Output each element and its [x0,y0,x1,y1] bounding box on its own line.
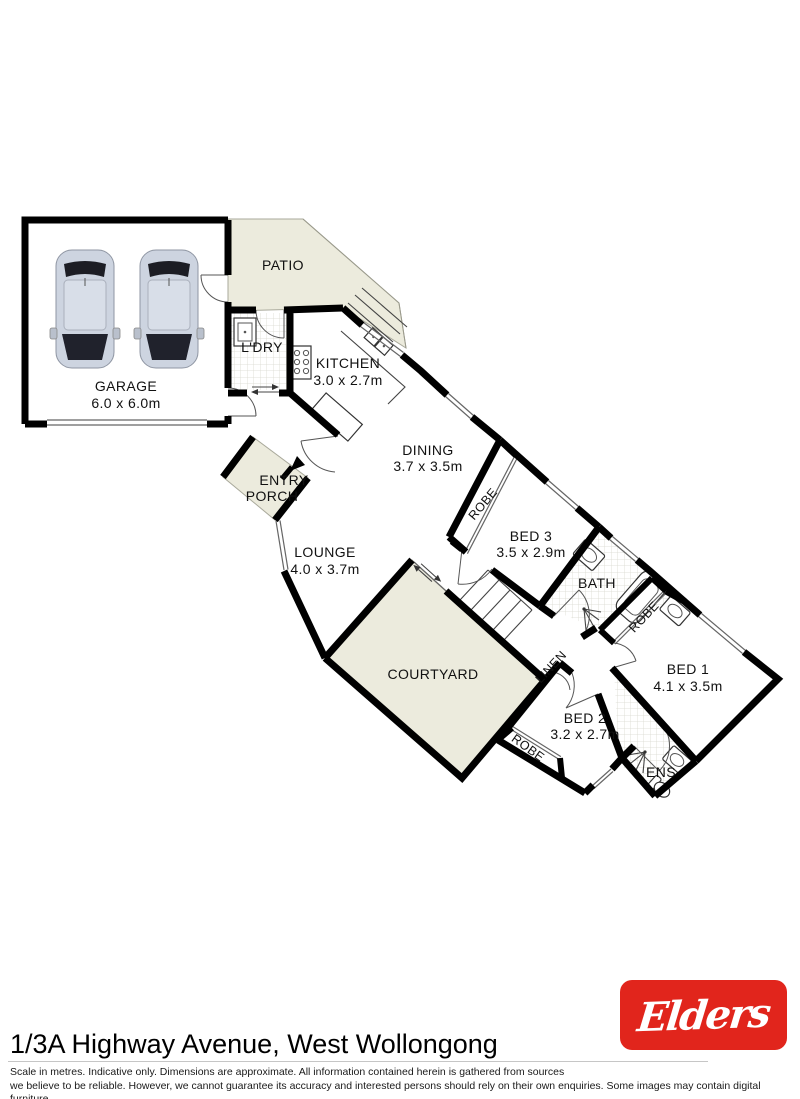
bed3-label: BED 3 [510,528,552,544]
bed1-dims: 4.1 x 3.5m [653,678,722,694]
car-icon [50,250,120,368]
disclaimer-text: Scale in metres. Indicative only. Dimens… [10,1066,790,1099]
garage-label: GARAGE [95,378,157,394]
lounge-label: LOUNGE [294,544,356,560]
lounge-dims: 4.0 x 3.7m [290,561,359,577]
disclaimer-line-1: Scale in metres. Indicative only. Dimens… [10,1066,790,1080]
garage-dims: 6.0 x 6.0m [91,395,160,411]
bed2-label: BED 2 [564,710,606,726]
courtyard-label: COURTYARD [388,666,479,682]
footer-divider [8,1061,708,1062]
floorplan-page: GARAGE 6.0 x 6.0m PATIO L'DRY KITCHEN 3.… [0,0,800,1099]
property-address: 1/3A Highway Avenue, West Wollongong [10,1029,498,1060]
kitchen-label: KITCHEN [316,355,380,371]
ensuite-label: ENS [646,764,676,780]
bed3-dims: 3.5 x 2.9m [496,544,565,560]
dining-dims: 3.7 x 3.5m [393,458,462,474]
disclaimer-line-2: we believe to be reliable. However, we c… [10,1080,790,1099]
kitchen-dims: 3.0 x 2.7m [313,372,382,388]
entry-label: ENTRY [259,472,308,488]
bed2-dims: 3.2 x 2.7m [550,726,619,742]
floorplan-drawing: GARAGE 6.0 x 6.0m PATIO L'DRY KITCHEN 3.… [0,0,800,965]
dining-label: DINING [402,442,453,458]
laundry-label: L'DRY [241,339,283,355]
elders-logo: Elders [620,980,787,1050]
stove-icon [291,346,311,379]
patio-label: PATIO [262,257,304,273]
car-icon [134,250,204,368]
bed1-label: BED 1 [667,661,709,677]
porch-label: PORCH [246,488,299,504]
elders-logo-text: Elders [635,989,771,1041]
bath-label: BATH [578,575,616,591]
